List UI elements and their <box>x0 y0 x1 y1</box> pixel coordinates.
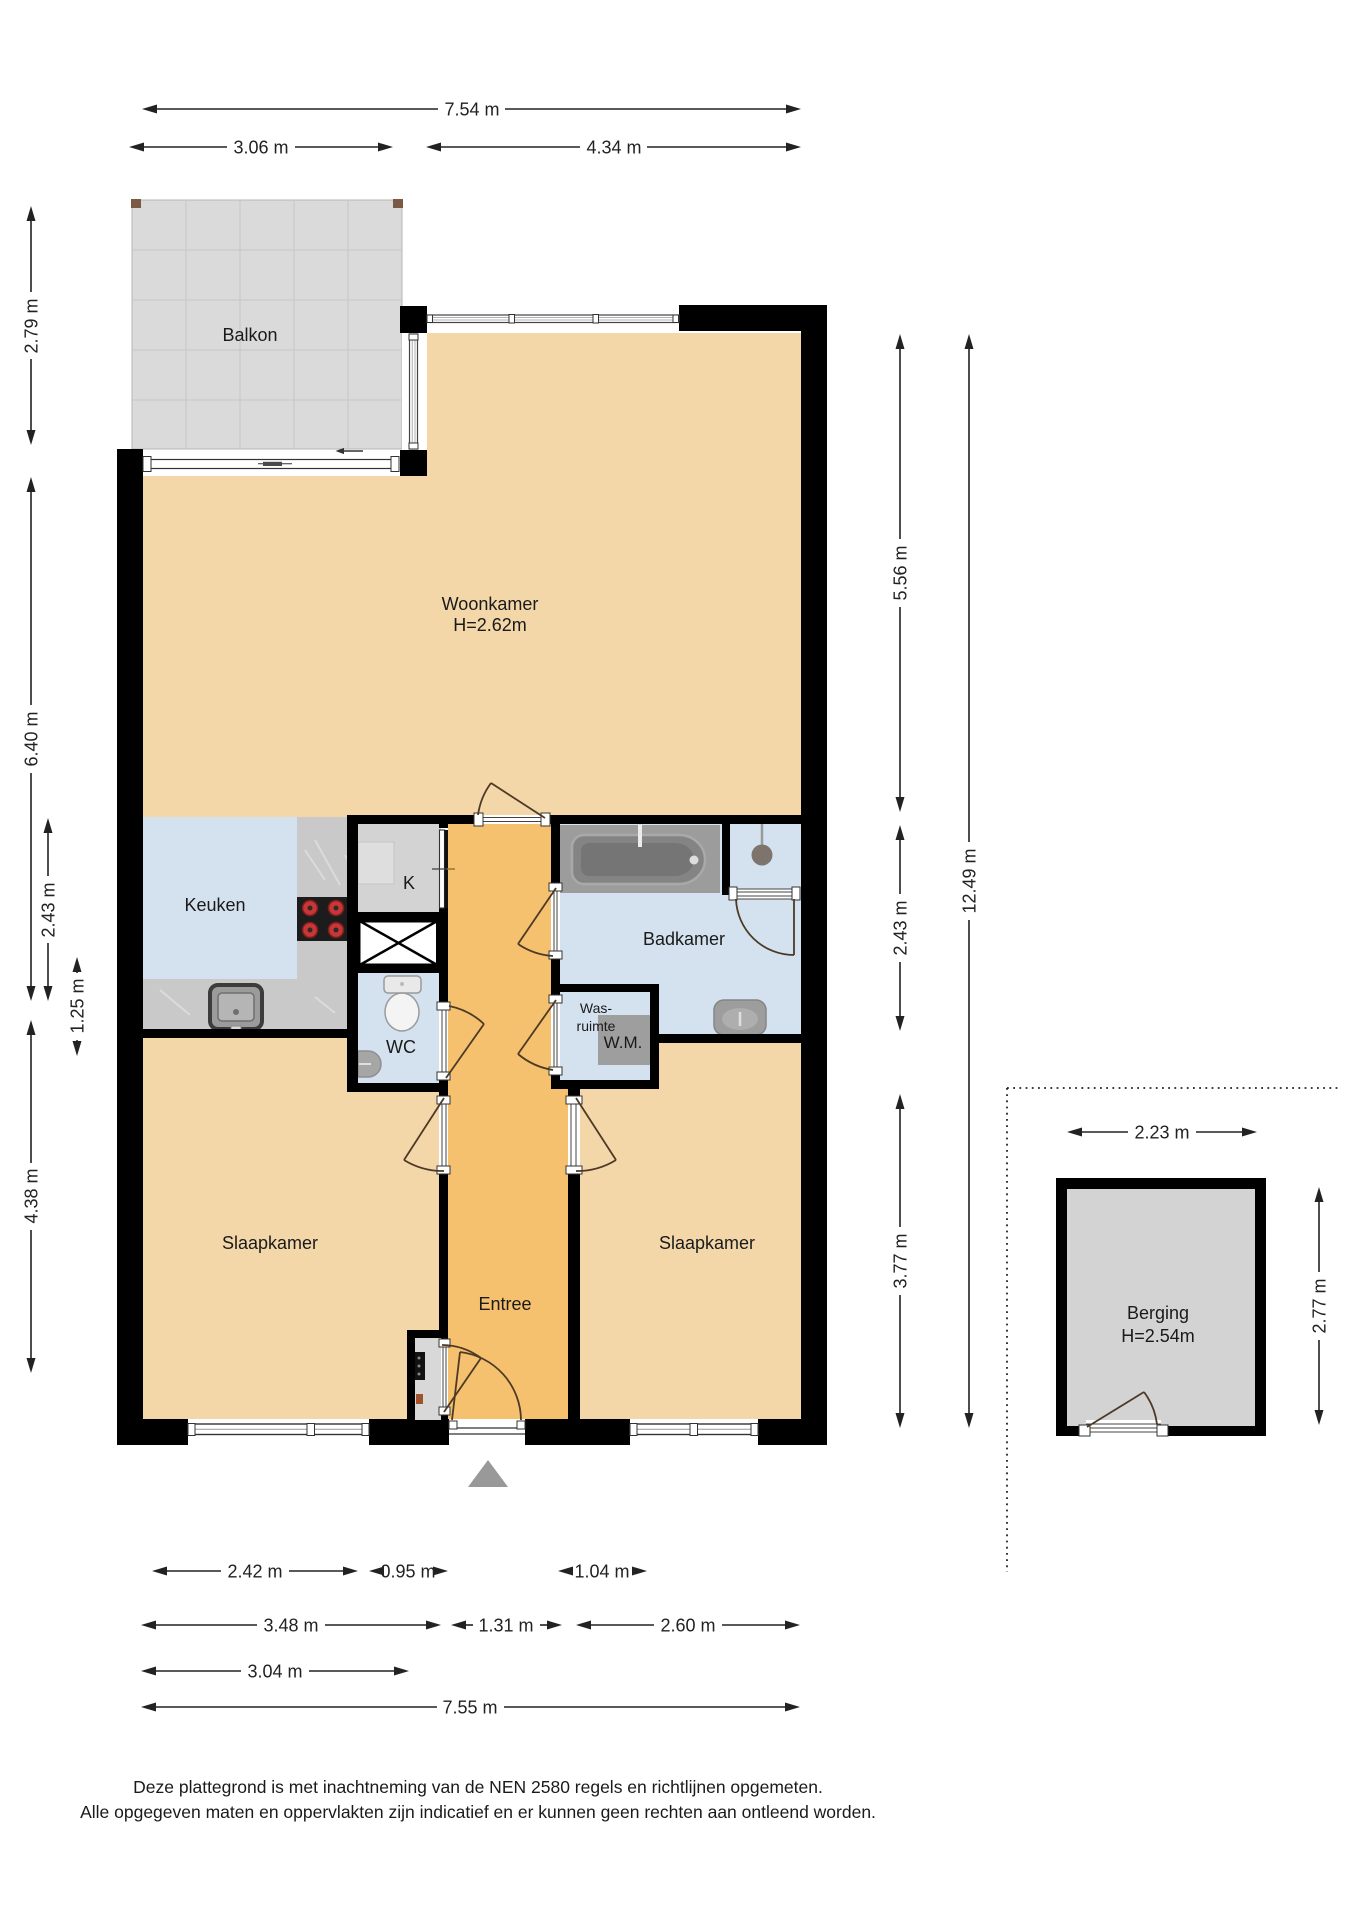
svg-text:Woonkamer: Woonkamer <box>442 594 539 614</box>
svg-text:0.95 m: 0.95 m <box>380 1562 435 1582</box>
svg-text:Keuken: Keuken <box>184 895 245 915</box>
svg-text:1.04 m: 1.04 m <box>574 1562 629 1582</box>
svg-text:Badkamer: Badkamer <box>643 929 725 949</box>
svg-text:12.49 m: 12.49 m <box>960 848 980 913</box>
svg-text:3.06 m: 3.06 m <box>233 138 288 158</box>
svg-text:W.M.: W.M. <box>604 1033 643 1052</box>
svg-text:Slaapkamer: Slaapkamer <box>222 1233 318 1253</box>
svg-text:6.40 m: 6.40 m <box>22 711 42 766</box>
svg-text:3.04 m: 3.04 m <box>247 1662 302 1682</box>
svg-text:H=2.54m: H=2.54m <box>1121 1326 1195 1346</box>
svg-text:Deze plattegrond is met inacht: Deze plattegrond is met inachtneming van… <box>133 1777 823 1797</box>
svg-text:1.31 m: 1.31 m <box>478 1616 533 1636</box>
svg-text:4.38 m: 4.38 m <box>22 1168 42 1223</box>
svg-text:3.77 m: 3.77 m <box>891 1233 911 1288</box>
svg-text:Balkon: Balkon <box>222 325 277 345</box>
svg-text:Slaapkamer: Slaapkamer <box>659 1233 755 1253</box>
svg-text:2.42 m: 2.42 m <box>227 1562 282 1582</box>
svg-text:2.43 m: 2.43 m <box>39 882 59 937</box>
svg-text:5.56 m: 5.56 m <box>891 545 911 600</box>
svg-text:Entree: Entree <box>478 1294 531 1314</box>
svg-text:2.23 m: 2.23 m <box>1134 1123 1189 1143</box>
svg-text:3.48 m: 3.48 m <box>263 1616 318 1636</box>
svg-text:Berging: Berging <box>1127 1303 1189 1323</box>
svg-text:H=2.62m: H=2.62m <box>453 615 527 635</box>
svg-text:Alle opgegeven maten en opperv: Alle opgegeven maten en oppervlakten zij… <box>80 1802 876 1822</box>
svg-text:K: K <box>403 873 415 893</box>
svg-text:2.60 m: 2.60 m <box>660 1616 715 1636</box>
svg-text:1.25 m: 1.25 m <box>68 978 88 1033</box>
svg-text:ruimte: ruimte <box>577 1018 616 1034</box>
svg-text:Was-: Was- <box>580 1000 612 1016</box>
svg-text:WC: WC <box>386 1037 416 1057</box>
svg-text:7.54 m: 7.54 m <box>444 100 499 120</box>
svg-text:7.55 m: 7.55 m <box>442 1698 497 1718</box>
svg-text:4.34 m: 4.34 m <box>586 138 641 158</box>
svg-text:2.77 m: 2.77 m <box>1310 1278 1330 1333</box>
svg-text:2.43 m: 2.43 m <box>891 900 911 955</box>
svg-text:2.79 m: 2.79 m <box>22 298 42 353</box>
